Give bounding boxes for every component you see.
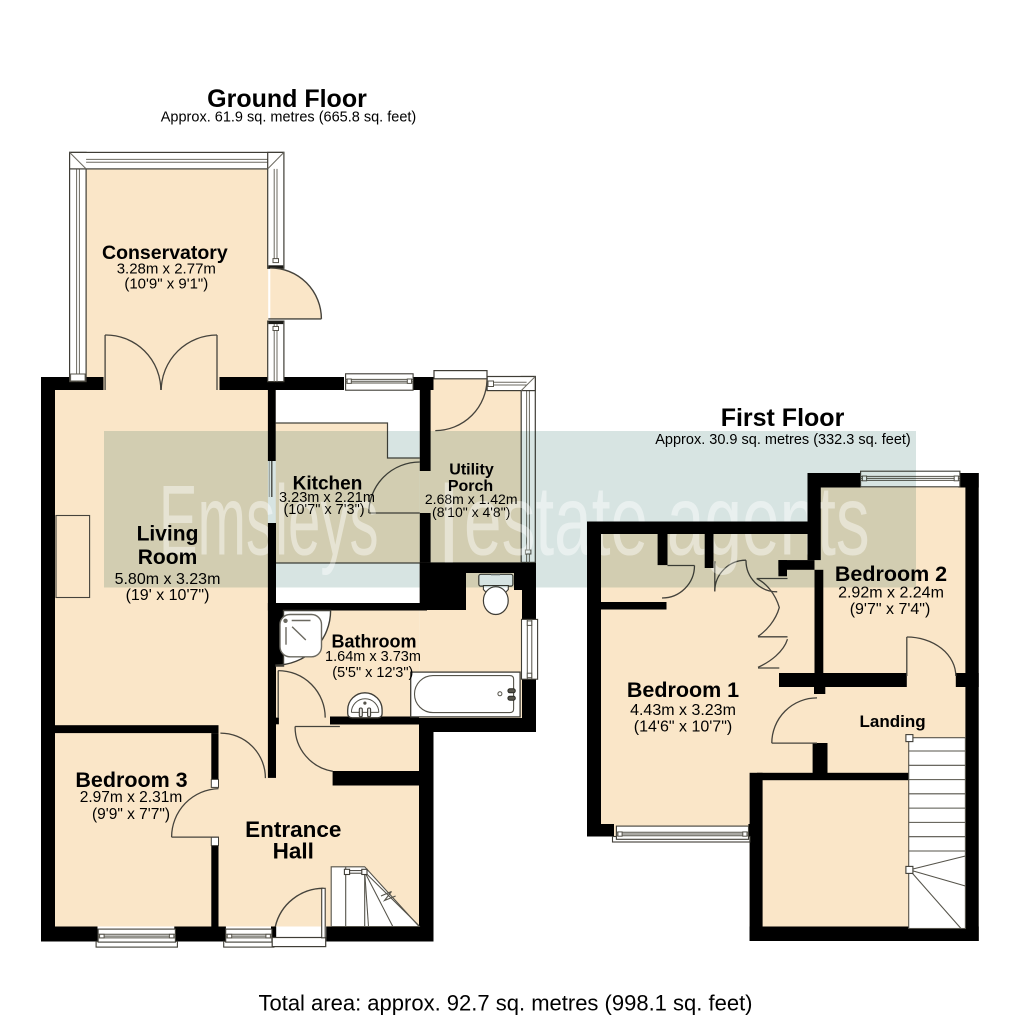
svg-text:2.97m x 2.31m: 2.97m x 2.31m xyxy=(80,789,183,806)
svg-text:(19' x 10'7"): (19' x 10'7") xyxy=(126,587,210,604)
svg-text:1.64m x 3.73m: 1.64m x 3.73m xyxy=(325,649,421,665)
svg-text:First Floor: First Floor xyxy=(721,404,845,432)
svg-text:Bedroom 1: Bedroom 1 xyxy=(627,678,739,702)
svg-text:Hall: Hall xyxy=(273,839,314,864)
svg-text:Landing: Landing xyxy=(860,712,926,731)
svg-text:(10'9" x 9'1"): (10'9" x 9'1") xyxy=(124,275,208,292)
svg-text:(5'5" x 12'3"): (5'5" x 12'3") xyxy=(332,665,413,681)
svg-text:Total area: approx. 92.7 sq. m: Total area: approx. 92.7 sq. metres (998… xyxy=(258,991,752,1016)
svg-text:(9'7" x 7'4"): (9'7" x 7'4") xyxy=(850,601,931,618)
svg-text:4.43m x 3.23m: 4.43m x 3.23m xyxy=(630,702,736,719)
svg-text:(14'6" x 10'7"): (14'6" x 10'7") xyxy=(634,719,732,736)
svg-text:(9'9" x 7'7"): (9'9" x 7'7") xyxy=(92,806,170,823)
svg-text:|: | xyxy=(436,465,462,576)
svg-text:Emsleys: Emsleys xyxy=(159,465,379,576)
svg-text:estate agents: estate agents xyxy=(464,465,870,576)
svg-text:Approx. 61.9 sq. metres (665.8: Approx. 61.9 sq. metres (665.8 sq. feet) xyxy=(161,110,417,126)
